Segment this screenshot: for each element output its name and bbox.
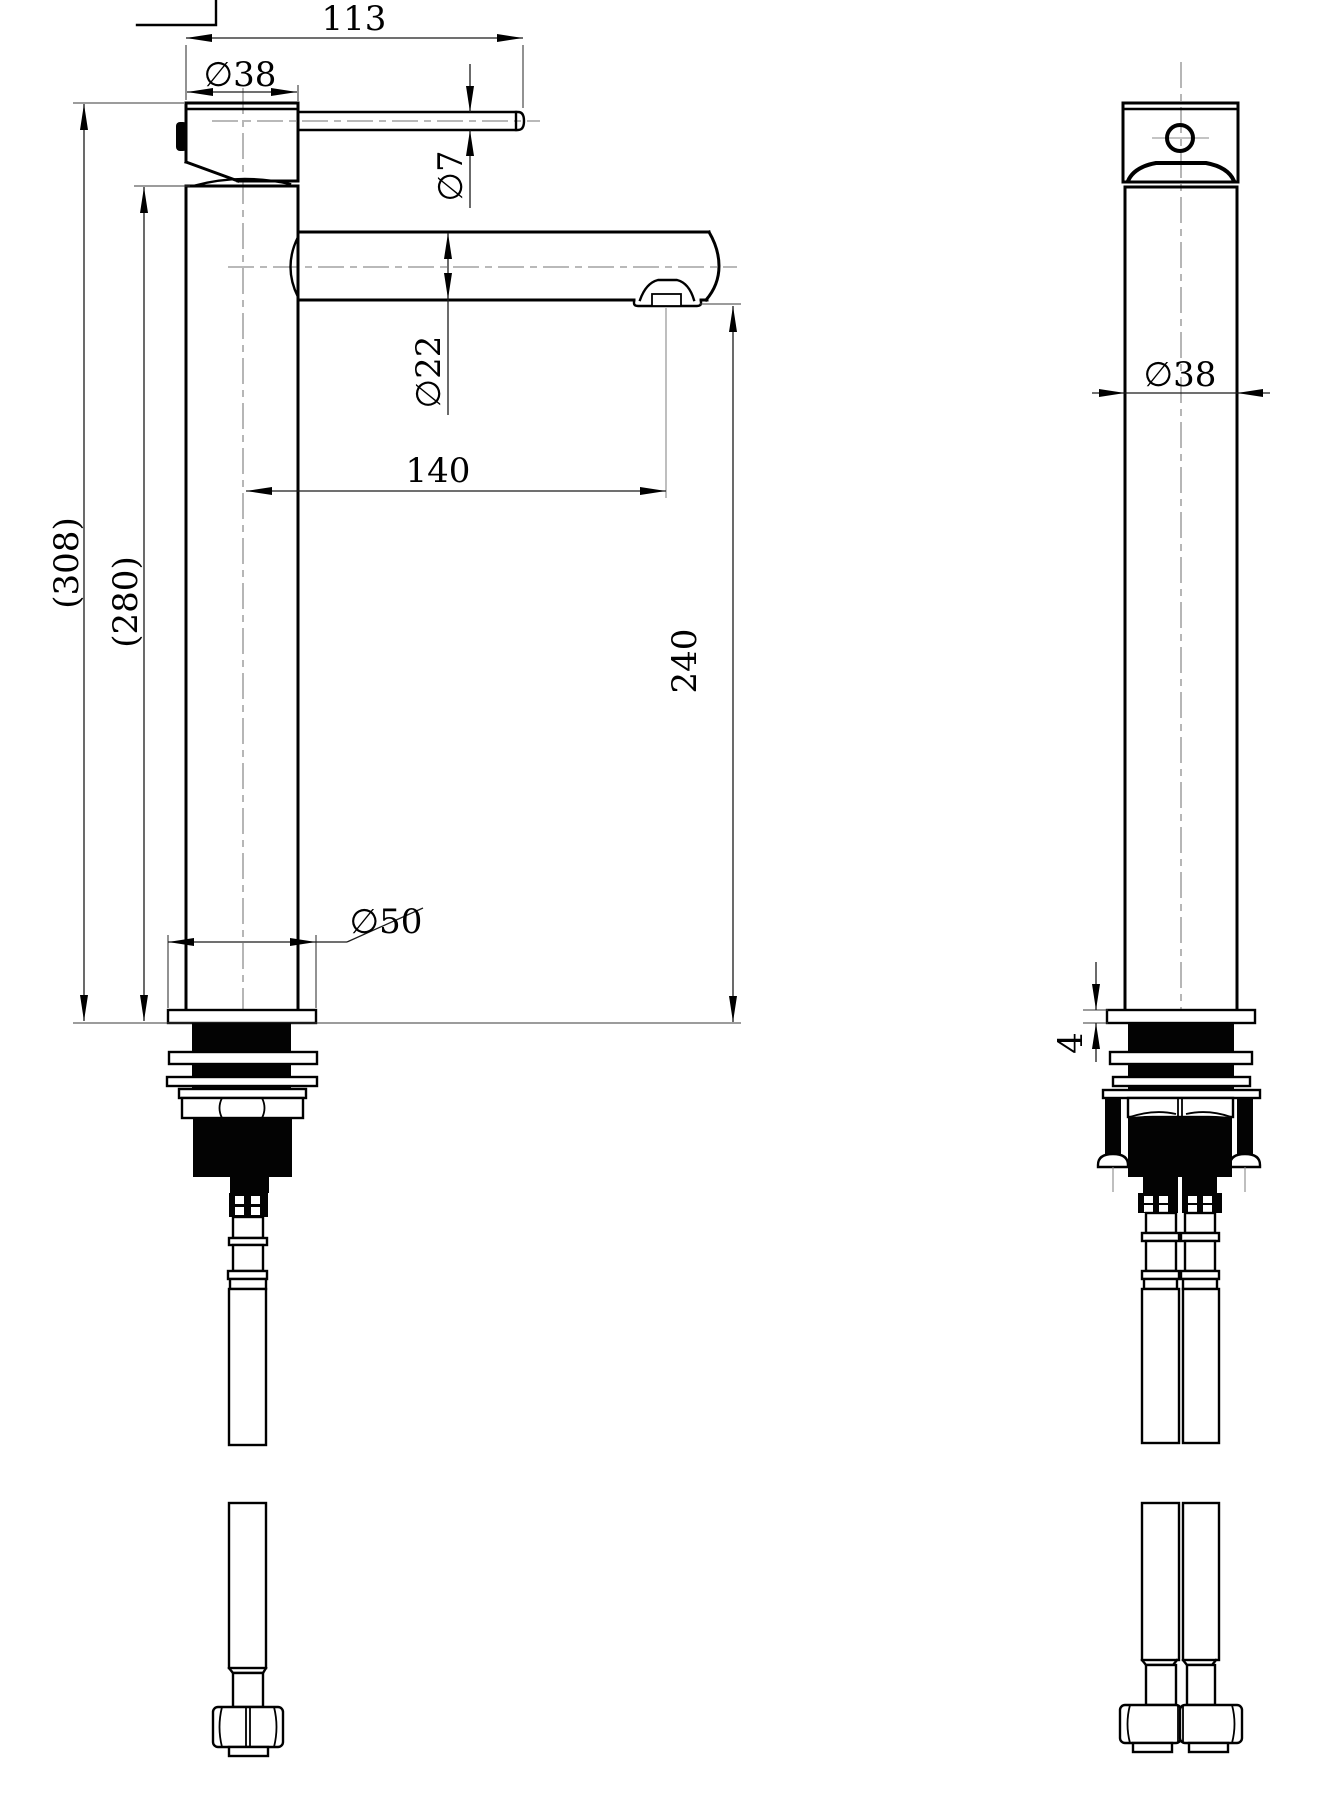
dim-lever-diameter: ∅7 bbox=[431, 64, 474, 208]
hose-crimp-fitting bbox=[229, 1193, 268, 1217]
side-handle-head bbox=[176, 103, 298, 186]
hose-lower-segment bbox=[229, 1503, 266, 1668]
threaded-tail bbox=[193, 1118, 292, 1177]
dim-label-308: (308) bbox=[47, 517, 87, 608]
dim-spout-reach: 140 bbox=[246, 308, 666, 498]
washer bbox=[169, 1052, 317, 1064]
locknut-flange bbox=[179, 1089, 306, 1098]
hose-end-nut bbox=[213, 1707, 283, 1747]
hose-end-nut-left bbox=[1120, 1705, 1181, 1743]
spout-end-cap bbox=[706, 232, 719, 300]
front-mounting-hardware bbox=[1098, 1023, 1260, 1213]
side-supply-hose bbox=[213, 1217, 283, 1756]
mounting-nut bbox=[1128, 1098, 1233, 1117]
dim-front-body-diameter: ∅38 bbox=[1092, 355, 1270, 397]
hose-end-tab bbox=[1133, 1743, 1172, 1752]
front-view bbox=[1098, 103, 1260, 1752]
hose-crimp-fitting-left bbox=[1138, 1193, 1178, 1213]
dim-base-diameter: ∅50 bbox=[168, 902, 423, 1008]
mounting-stud-right bbox=[1230, 1098, 1260, 1192]
front-supply-hoses bbox=[1120, 1213, 1242, 1752]
dim-outlet-height: 240 bbox=[665, 304, 741, 1022]
hose-crimp-fitting-right bbox=[1182, 1193, 1222, 1213]
front-deck-flange bbox=[1107, 1010, 1255, 1023]
washer bbox=[1110, 1052, 1252, 1064]
drawing-sheet: 113 ∅38 ∅7 ∅22 bbox=[0, 0, 1338, 1800]
handle-set-screw bbox=[176, 122, 187, 151]
frame-corner bbox=[137, 0, 216, 25]
hose-end-tab bbox=[229, 1747, 268, 1756]
mounting-nut bbox=[182, 1098, 303, 1118]
threaded-shank bbox=[192, 1023, 291, 1053]
faucet-technical-drawing: 113 ∅38 ∅7 ∅22 bbox=[0, 0, 1338, 1800]
dim-label-240: 240 bbox=[665, 629, 705, 694]
dim-label-d50: ∅50 bbox=[350, 902, 423, 942]
side-base bbox=[73, 1010, 741, 1023]
threaded-tail bbox=[1128, 1117, 1232, 1177]
side-mounting-hardware bbox=[167, 1023, 317, 1217]
dim-body-height: (280) bbox=[106, 186, 190, 1021]
dim-label-113: 113 bbox=[322, 0, 387, 39]
dim-label-4: 4 bbox=[1051, 1032, 1091, 1054]
dim-label-d7: ∅7 bbox=[431, 150, 471, 201]
threaded-shank bbox=[1128, 1023, 1234, 1052]
dim-label-140: 140 bbox=[406, 451, 471, 491]
spout-aerator bbox=[634, 280, 701, 306]
washer bbox=[167, 1077, 317, 1086]
dim-spout-diameter: ∅22 bbox=[409, 233, 452, 415]
hose-end-nut-right bbox=[1180, 1705, 1242, 1743]
washer bbox=[1113, 1077, 1250, 1086]
dim-label-d38-side: ∅38 bbox=[204, 55, 277, 95]
dim-label-d22: ∅22 bbox=[409, 336, 449, 409]
hose-neck bbox=[233, 1673, 263, 1707]
side-body bbox=[186, 186, 298, 1010]
hose-upper-segment bbox=[229, 1289, 266, 1445]
deck-flange bbox=[168, 1010, 316, 1023]
dim-label-d38-front: ∅38 bbox=[1144, 355, 1217, 395]
hose-end-tab bbox=[1189, 1743, 1228, 1752]
mounting-stud-left bbox=[1098, 1098, 1128, 1192]
dim-label-280: (280) bbox=[106, 556, 146, 647]
side-spout bbox=[291, 232, 720, 306]
centerlines bbox=[212, 62, 1209, 1108]
dim-head-diameter: ∅38 bbox=[187, 55, 298, 101]
dim-flange-thickness: 4 bbox=[1051, 962, 1108, 1062]
dimensions: 113 ∅38 ∅7 ∅22 bbox=[47, 0, 1270, 1062]
